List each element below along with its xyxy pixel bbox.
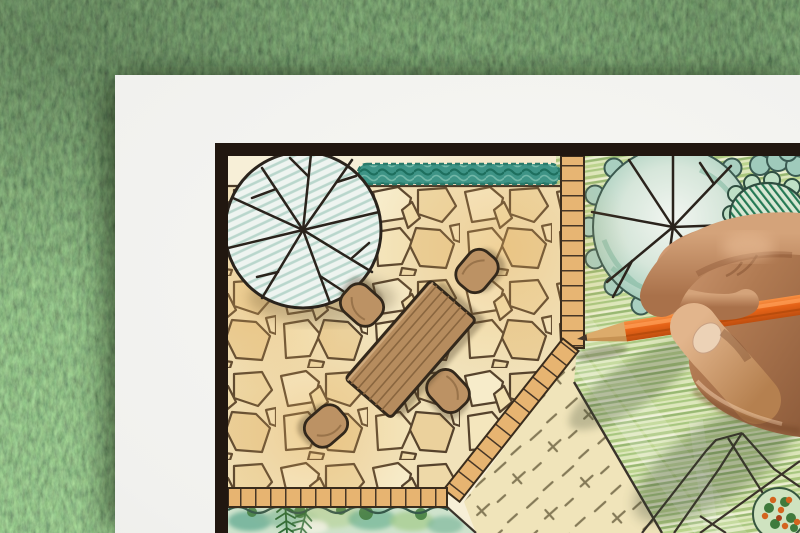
plan-drawing	[228, 156, 800, 533]
plan-drawing-frame	[215, 143, 800, 533]
hedge-strip	[358, 164, 560, 184]
photo-scene: { "scene": { "type": "photograph", "desc…	[0, 0, 800, 533]
